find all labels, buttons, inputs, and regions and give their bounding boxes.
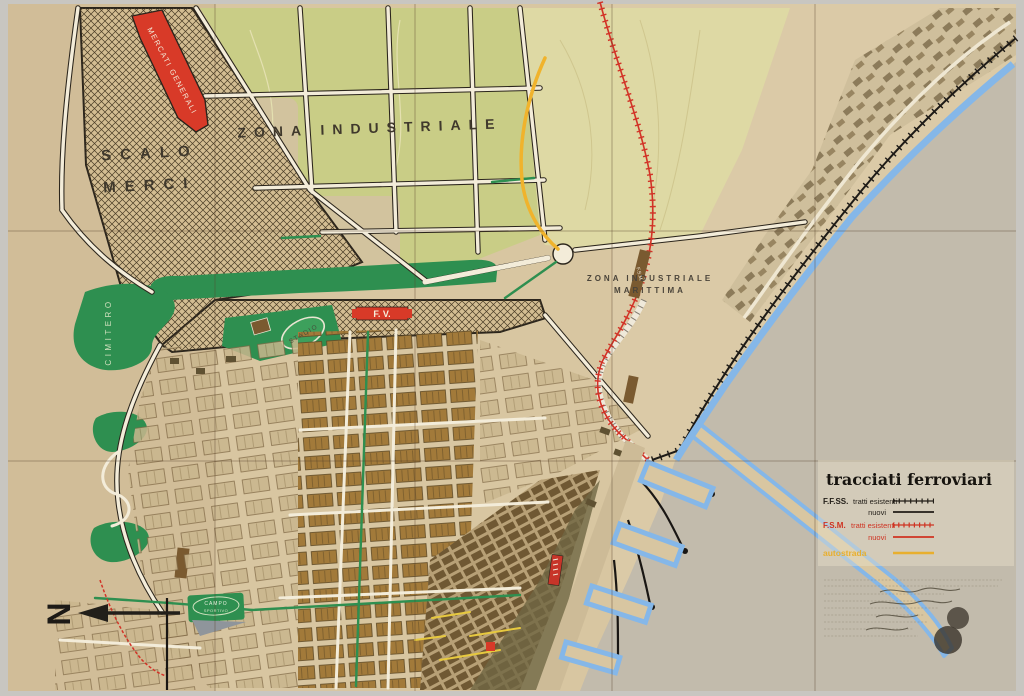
legend-label-fsm-nuovi: nuovi bbox=[868, 533, 886, 542]
legend-label-fsm-esistenti: tratti esistenti bbox=[851, 521, 896, 530]
red-square-marker bbox=[486, 642, 495, 651]
campo-label-1: CAMPO bbox=[204, 601, 227, 607]
legend-label-ffss-nuovi: nuovi bbox=[868, 508, 886, 517]
legend-label-ffss-esistenti: tratti esistenti bbox=[853, 497, 898, 506]
zona-marittima-label-2: MARITTIMA bbox=[614, 286, 686, 295]
legend-prefix-fsm: F.S.M. bbox=[823, 521, 846, 530]
zona-marittima-label-1: ZONA INDUSTRIALE bbox=[587, 274, 713, 283]
cimitero-label: CIMITERO bbox=[104, 298, 113, 365]
fv-label: F. V. bbox=[373, 309, 390, 319]
legend: tracciati ferroviari F.F.SS. tratti esis… bbox=[818, 460, 1014, 566]
map-photo: { "map": { "labels": { "scalo_1": "SCALO… bbox=[0, 0, 1024, 696]
north-letter: N bbox=[41, 602, 77, 625]
legend-label-autostrada: autostrada bbox=[823, 548, 867, 558]
legend-prefix-ffss: F.F.SS. bbox=[823, 497, 848, 506]
legend-title: tracciati ferroviari bbox=[826, 470, 992, 489]
campo-label-2: SPORTIVO bbox=[204, 608, 229, 613]
historic-city-map: SCALO MERCI MERCATI GENERALI ZONA INDUST… bbox=[0, 0, 1024, 696]
